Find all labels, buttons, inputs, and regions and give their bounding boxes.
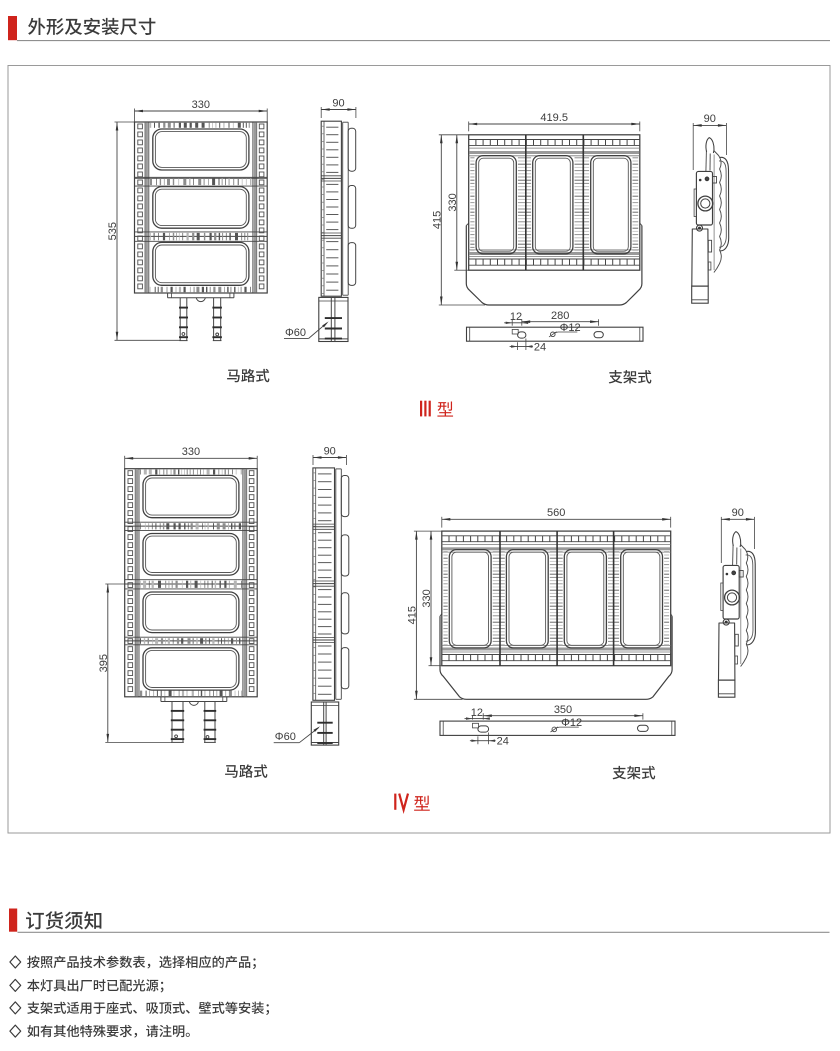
svg-text:Φ12: Φ12 <box>561 717 582 729</box>
svg-text:24: 24 <box>497 736 509 748</box>
svg-text:Φ60: Φ60 <box>275 731 296 743</box>
svg-text:560: 560 <box>547 507 565 519</box>
svg-text:90: 90 <box>732 507 744 519</box>
svg-text:280: 280 <box>551 310 569 322</box>
svg-text:Φ60: Φ60 <box>285 327 306 339</box>
svg-text:12: 12 <box>471 707 483 719</box>
svg-text:Φ12: Φ12 <box>560 322 581 334</box>
svg-text:419.5: 419.5 <box>540 112 568 124</box>
svg-text:330: 330 <box>421 589 433 607</box>
svg-text:535: 535 <box>107 222 119 240</box>
svg-text:90: 90 <box>332 97 344 109</box>
svg-text:330: 330 <box>182 446 200 458</box>
svg-text:415: 415 <box>406 606 418 624</box>
svg-text:395: 395 <box>98 654 110 672</box>
svg-text:90: 90 <box>324 445 336 457</box>
svg-text:330: 330 <box>447 193 459 211</box>
svg-text:330: 330 <box>192 99 210 111</box>
svg-text:415: 415 <box>431 211 443 229</box>
svg-text:350: 350 <box>554 704 572 716</box>
svg-text:12: 12 <box>510 311 522 323</box>
svg-text:90: 90 <box>704 113 716 125</box>
svg-text:24: 24 <box>534 341 546 353</box>
